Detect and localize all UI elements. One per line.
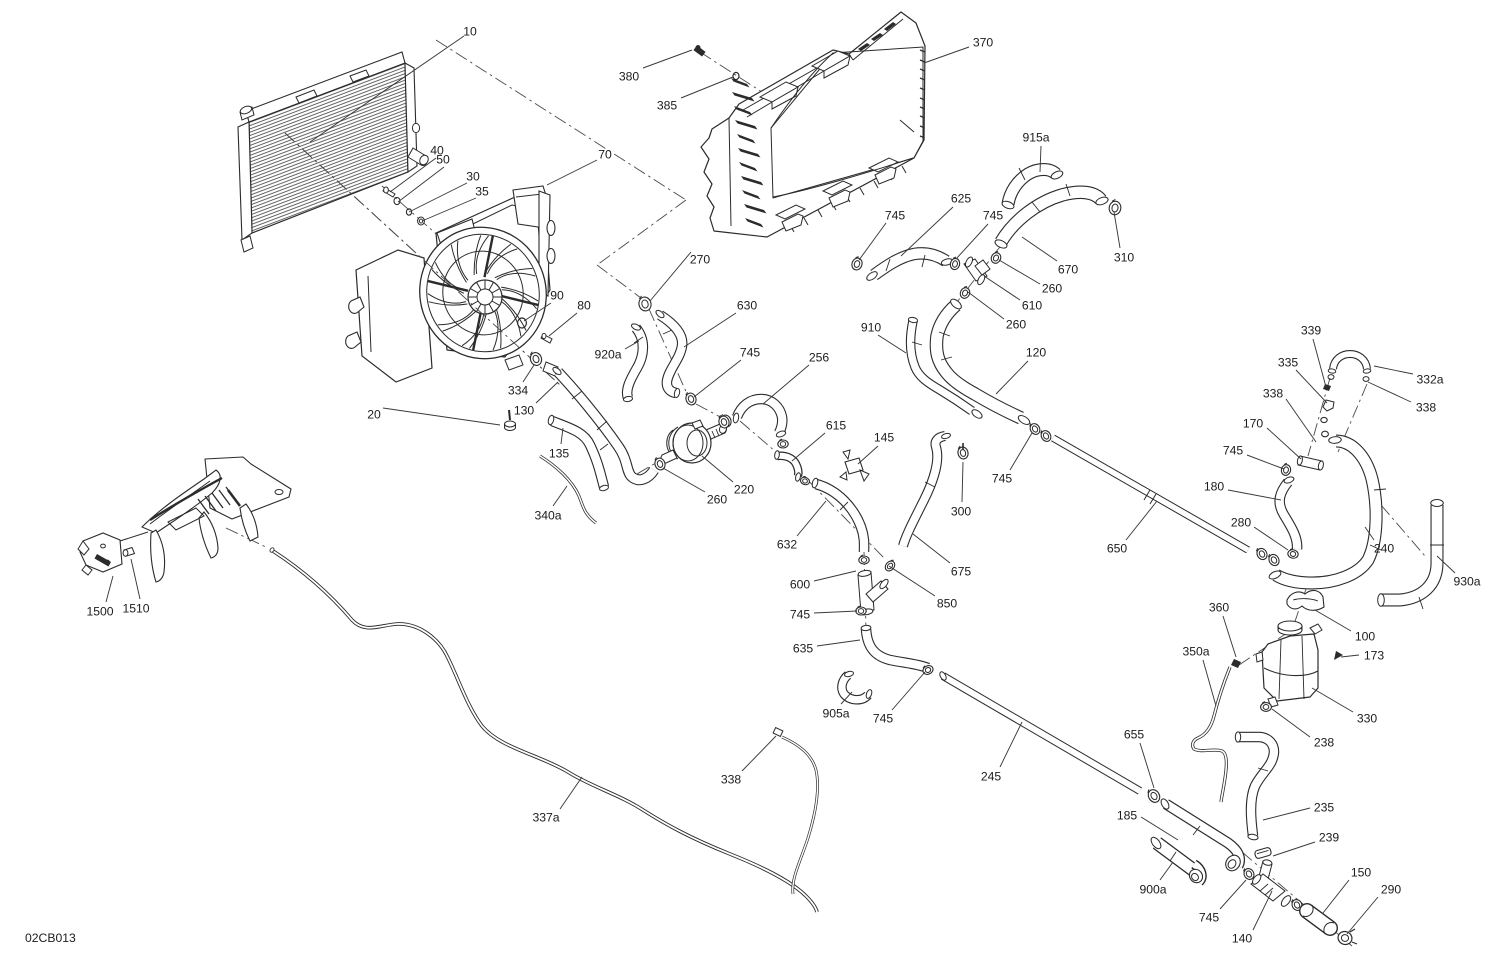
svg-text:635: 635 — [793, 641, 814, 655]
svg-text:380: 380 — [619, 69, 640, 83]
svg-text:240: 240 — [1374, 541, 1395, 555]
svg-text:260: 260 — [1006, 317, 1027, 331]
svg-text:290: 290 — [1381, 882, 1402, 896]
svg-text:655: 655 — [1124, 727, 1145, 741]
svg-text:245: 245 — [981, 769, 1002, 783]
svg-text:650: 650 — [1107, 541, 1128, 555]
svg-text:385: 385 — [657, 98, 678, 112]
svg-text:280: 280 — [1231, 515, 1252, 529]
svg-text:235: 235 — [1314, 800, 1335, 814]
svg-text:910: 910 — [861, 320, 882, 334]
svg-text:260: 260 — [1042, 281, 1063, 295]
svg-text:350a: 350a — [1182, 644, 1209, 658]
svg-text:330: 330 — [1357, 711, 1378, 725]
svg-text:600: 600 — [790, 577, 811, 591]
svg-text:630: 630 — [737, 298, 758, 312]
svg-text:239: 239 — [1319, 830, 1340, 844]
svg-text:335: 335 — [1278, 355, 1299, 369]
svg-text:135: 135 — [549, 446, 570, 460]
svg-text:260: 260 — [707, 492, 728, 506]
svg-text:310: 310 — [1114, 250, 1135, 264]
svg-text:745: 745 — [992, 471, 1013, 485]
svg-text:745: 745 — [790, 607, 811, 621]
svg-text:625: 625 — [951, 191, 972, 205]
svg-text:130: 130 — [514, 403, 535, 417]
svg-text:334: 334 — [508, 383, 529, 397]
svg-text:02CB013: 02CB013 — [25, 931, 76, 945]
svg-text:120: 120 — [1026, 345, 1047, 359]
svg-text:915a: 915a — [1022, 130, 1049, 144]
svg-text:145: 145 — [874, 430, 895, 444]
svg-text:360: 360 — [1209, 600, 1230, 614]
svg-text:340a: 340a — [534, 508, 561, 522]
svg-text:675: 675 — [951, 564, 972, 578]
svg-text:220: 220 — [734, 482, 755, 496]
svg-text:30: 30 — [466, 169, 480, 183]
svg-text:339: 339 — [1301, 323, 1322, 337]
svg-text:930a: 930a — [1453, 574, 1480, 588]
svg-text:1510: 1510 — [122, 601, 149, 615]
svg-text:50: 50 — [436, 152, 450, 166]
svg-text:745: 745 — [740, 345, 761, 359]
svg-text:238: 238 — [1314, 735, 1335, 749]
svg-text:338: 338 — [1263, 386, 1284, 400]
svg-text:180: 180 — [1204, 479, 1225, 493]
svg-text:90: 90 — [550, 288, 564, 302]
svg-text:185: 185 — [1117, 808, 1138, 822]
svg-text:256: 256 — [809, 350, 830, 364]
svg-text:10: 10 — [463, 24, 477, 38]
svg-text:670: 670 — [1058, 262, 1079, 276]
svg-text:270: 270 — [690, 252, 711, 266]
svg-text:140: 140 — [1232, 931, 1253, 945]
svg-text:100: 100 — [1355, 629, 1376, 643]
svg-text:1500: 1500 — [86, 604, 113, 618]
svg-text:745: 745 — [983, 208, 1004, 222]
svg-text:150: 150 — [1351, 865, 1372, 879]
svg-text:370: 370 — [973, 35, 994, 49]
svg-text:900a: 900a — [1139, 882, 1166, 896]
svg-text:920a: 920a — [594, 347, 621, 361]
svg-text:20: 20 — [367, 407, 381, 421]
svg-text:300: 300 — [951, 504, 972, 518]
svg-text:35: 35 — [475, 184, 489, 198]
svg-text:70: 70 — [598, 147, 612, 161]
svg-text:173: 173 — [1364, 648, 1385, 662]
svg-text:337a: 337a — [532, 810, 559, 824]
svg-text:745: 745 — [1223, 443, 1244, 457]
svg-text:610: 610 — [1022, 298, 1043, 312]
svg-text:615: 615 — [826, 418, 847, 432]
svg-text:338: 338 — [721, 772, 742, 786]
svg-text:80: 80 — [577, 298, 591, 312]
svg-text:170: 170 — [1243, 416, 1264, 430]
svg-text:905a: 905a — [822, 706, 849, 720]
svg-text:850: 850 — [937, 596, 958, 610]
svg-text:745: 745 — [873, 711, 894, 725]
svg-text:745: 745 — [1199, 910, 1220, 924]
svg-text:632: 632 — [777, 537, 798, 551]
svg-text:332a: 332a — [1416, 372, 1443, 386]
svg-text:745: 745 — [885, 208, 906, 222]
svg-text:338: 338 — [1416, 400, 1437, 414]
